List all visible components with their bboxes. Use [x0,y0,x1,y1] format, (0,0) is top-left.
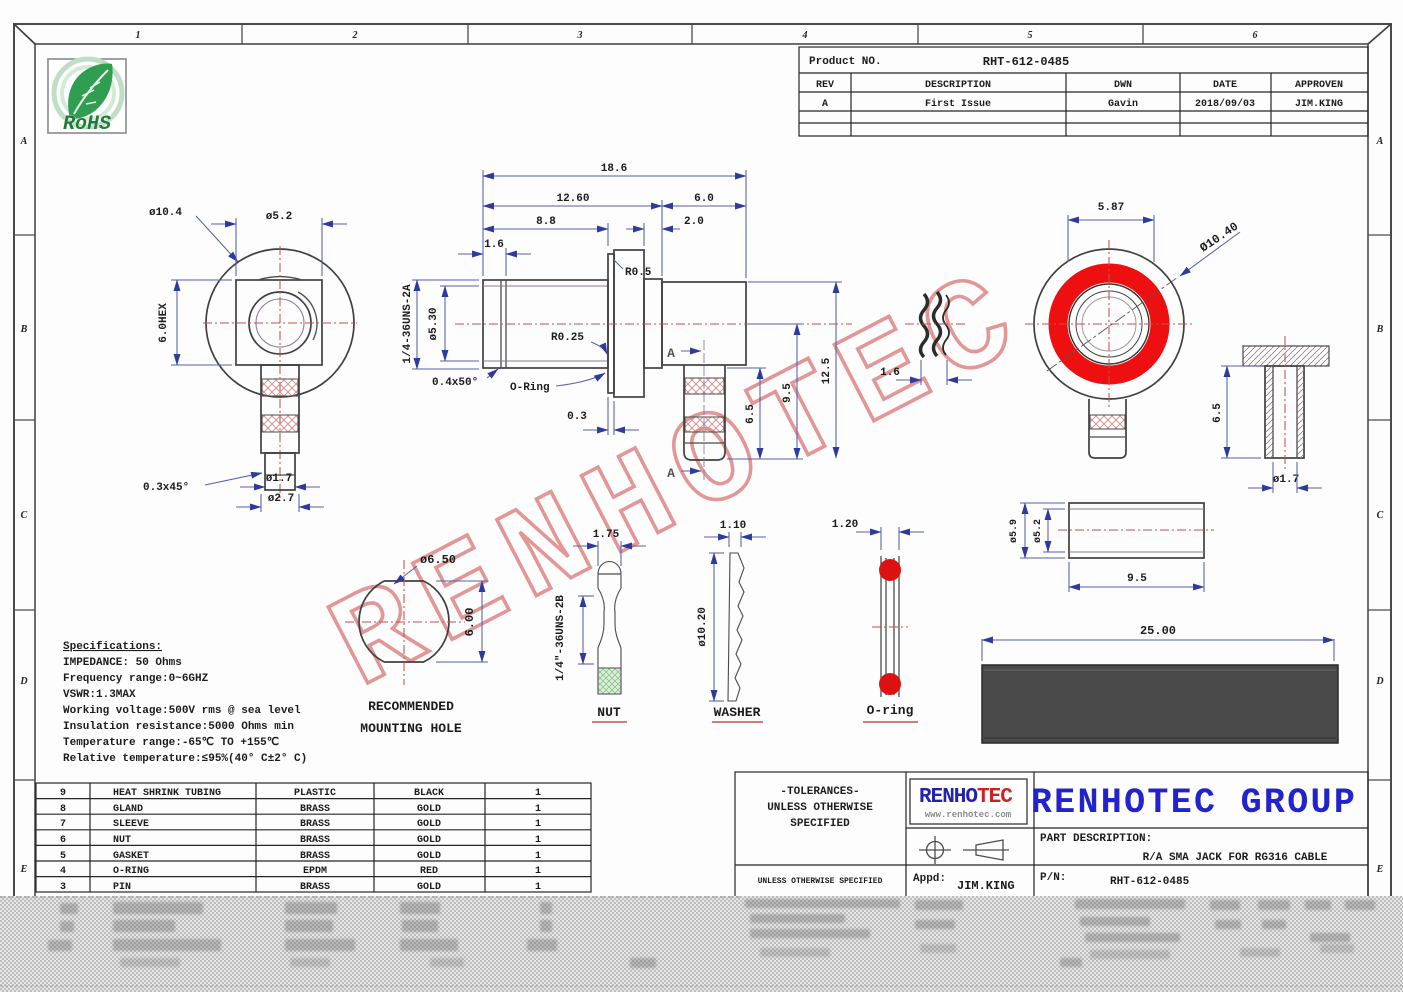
svg-text:BRASS: BRASS [300,851,330,862]
svg-text:1: 1 [535,804,541,815]
svg-text:D: D [1375,676,1383,687]
svg-text:MOUNTING HOLE: MOUNTING HOLE [360,721,462,736]
svg-text:PART DESCRIPTION:: PART DESCRIPTION: [1040,833,1152,845]
svg-text:9: 9 [60,788,66,799]
svg-text:3: 3 [577,30,583,41]
svg-text:12.60: 12.60 [556,193,589,205]
svg-text:4: 4 [60,866,66,877]
svg-text:IMPEDANCE: 50 Ohms: IMPEDANCE: 50 Ohms [63,657,182,669]
svg-text:ø5.9: ø5.9 [1009,519,1020,543]
svg-text:6.5: 6.5 [1212,403,1224,423]
svg-text:SLEEVE: SLEEVE [113,819,149,830]
svg-text:JIM.KING: JIM.KING [957,879,1015,893]
svg-text:A: A [667,466,675,481]
svg-text:ø5.2: ø5.2 [266,211,292,223]
svg-text:Gavin: Gavin [1108,98,1138,110]
svg-text:6.0HEX: 6.0HEX [158,303,170,343]
svg-text:BRASS: BRASS [300,835,330,846]
svg-text:5: 5 [1028,30,1033,41]
svg-text:B: B [1376,324,1384,335]
svg-text:GOLD: GOLD [417,851,441,862]
svg-text:4: 4 [802,30,808,41]
svg-text:1.6: 1.6 [880,367,900,379]
svg-text:2018/09/03: 2018/09/03 [1195,98,1255,110]
svg-text:ø1.7: ø1.7 [266,473,292,485]
svg-text:8.8: 8.8 [536,216,556,228]
svg-text:Frequency range:0~6GHZ: Frequency range:0~6GHZ [63,673,209,685]
svg-text:Relative temperature:≤95%(40°: Relative temperature:≤95%(40° C±2° C) [63,753,307,765]
svg-text:RED: RED [420,866,438,877]
svg-text:1/4-36UNS-2A: 1/4-36UNS-2A [402,284,414,364]
svg-text:RENHOTEC GROUP: RENHOTEC GROUP [1031,783,1357,823]
svg-text:O-RING: O-RING [113,866,149,877]
svg-text:3: 3 [60,882,66,893]
svg-text:ø10.20: ø10.20 [697,607,709,647]
svg-text:5: 5 [60,851,66,862]
svg-text:1.10: 1.10 [720,520,746,532]
svg-text:ø10.4: ø10.4 [149,207,182,219]
svg-text:BLACK: BLACK [414,788,444,799]
svg-text:O-ring: O-ring [867,703,914,718]
svg-text:1: 1 [535,851,541,862]
svg-text:1.75: 1.75 [593,529,620,541]
svg-text:EPDM: EPDM [303,866,327,877]
svg-text:BRASS: BRASS [300,804,330,815]
svg-text:ø1.7: ø1.7 [1273,474,1299,486]
svg-text:A: A [20,136,28,147]
svg-text:DATE: DATE [1213,80,1237,91]
svg-text:9.5: 9.5 [782,383,794,403]
svg-text:SPECIFIED: SPECIFIED [790,818,850,830]
svg-text:1: 1 [136,30,141,41]
svg-text:NUT: NUT [597,705,621,720]
svg-text:R/A SMA JACK FOR RG316 CABLE: R/A SMA JACK FOR RG316 CABLE [1143,852,1328,864]
svg-text:UNLESS OTHERWISE SPECIFIED: UNLESS OTHERWISE SPECIFIED [758,877,883,886]
svg-text:RECOMMENDED: RECOMMENDED [368,699,454,714]
svg-text:DWN: DWN [1114,80,1132,91]
svg-text:Product NO.: Product NO. [809,56,882,68]
svg-text:25.00: 25.00 [1140,624,1176,638]
svg-text:B: B [20,324,28,335]
svg-text:UNLESS OTHERWISE: UNLESS OTHERWISE [767,802,873,814]
svg-text:HEAT SHRINK TUBING: HEAT SHRINK TUBING [113,788,221,799]
svg-text:1: 1 [535,866,541,877]
svg-text:6: 6 [60,835,66,846]
svg-text:GOLD: GOLD [417,835,441,846]
svg-text:GASKET: GASKET [113,851,149,862]
svg-text:18.6: 18.6 [601,163,627,175]
svg-text:Specifications:: Specifications: [63,641,162,653]
svg-text:ø6.50: ø6.50 [420,553,456,567]
svg-text:Appd:: Appd: [913,873,946,885]
svg-text:2: 2 [352,30,358,41]
svg-text:12.5: 12.5 [821,357,833,384]
svg-text:0.4x50°: 0.4x50° [432,377,478,389]
svg-text:0.3: 0.3 [567,411,587,423]
svg-text:NUT: NUT [113,835,131,846]
svg-text:GOLD: GOLD [417,819,441,830]
svg-text:5.87: 5.87 [1098,202,1124,214]
svg-text:1.20: 1.20 [832,519,858,531]
svg-text:6: 6 [1253,30,1258,41]
svg-text:-TOLERANCES-: -TOLERANCES- [780,786,859,798]
svg-text:BRASS: BRASS [300,819,330,830]
svg-text:DESCRIPTION: DESCRIPTION [925,80,991,91]
svg-text:GLAND: GLAND [113,804,143,815]
svg-text:APPROVEN: APPROVEN [1295,80,1343,91]
svg-text:1: 1 [535,819,541,830]
svg-text:WASHER: WASHER [714,705,761,720]
svg-text:VSWR:1.3MAX: VSWR:1.3MAX [63,689,136,701]
svg-text:R0.5: R0.5 [625,267,652,279]
svg-text:BRASS: BRASS [300,882,330,893]
svg-text:7: 7 [60,819,66,830]
svg-text:RHT-612-0485: RHT-612-0485 [1110,876,1190,888]
svg-text:GOLD: GOLD [417,804,441,815]
svg-text:First Issue: First Issue [925,98,991,110]
svg-text:Working voltage:500V rms @ sea: Working voltage:500V rms @ sea level [63,705,301,717]
svg-text:www.renhotec.com: www.renhotec.com [925,810,1012,820]
svg-text:A: A [667,346,675,361]
svg-text:1: 1 [535,788,541,799]
svg-text:1: 1 [535,835,541,846]
svg-text:PLASTIC: PLASTIC [294,788,336,799]
svg-text:JIM.KING: JIM.KING [1295,99,1343,110]
svg-text:A: A [1376,136,1384,147]
svg-text:6.00: 6.00 [463,608,477,637]
svg-text:ø5.2: ø5.2 [1033,519,1044,543]
svg-text:8: 8 [60,804,66,815]
svg-text:0.3x45°: 0.3x45° [143,482,189,494]
svg-text:9.5: 9.5 [1127,573,1147,585]
svg-text:RoHS: RoHS [63,113,111,136]
svg-text:GOLD: GOLD [417,882,441,893]
svg-text:1.6: 1.6 [484,239,504,251]
svg-text:1/4"-36UNS-2B: 1/4"-36UNS-2B [555,595,567,681]
svg-text:RENHOTEC: RENHOTEC [919,786,1013,809]
svg-text:R0.25: R0.25 [551,332,584,344]
svg-text:Temperature range:-65℃ TO +155: Temperature range:-65℃ TO +155℃ [63,736,279,749]
svg-text:ø5.30: ø5.30 [428,307,440,340]
svg-text:ø2.7: ø2.7 [268,493,294,505]
svg-text:1: 1 [535,882,541,893]
svg-text:RHT-612-0485: RHT-612-0485 [983,55,1069,69]
svg-text:O-Ring: O-Ring [510,382,550,394]
svg-text:Insulation resistance:5000 Ohm: Insulation resistance:5000 Ohms min [63,721,294,733]
svg-text:E: E [20,864,28,875]
svg-text:A: A [822,99,828,110]
svg-text:P/N:: P/N: [1040,872,1066,884]
svg-text:6.0: 6.0 [694,193,714,205]
svg-text:REV: REV [816,80,834,91]
svg-text:C: C [21,510,28,521]
svg-text:E: E [1376,864,1384,875]
svg-text:C: C [1377,510,1384,521]
svg-text:D: D [19,676,27,687]
svg-text:2.0: 2.0 [684,216,704,228]
svg-text:6.5: 6.5 [745,404,757,424]
svg-text:PIN: PIN [113,882,131,893]
